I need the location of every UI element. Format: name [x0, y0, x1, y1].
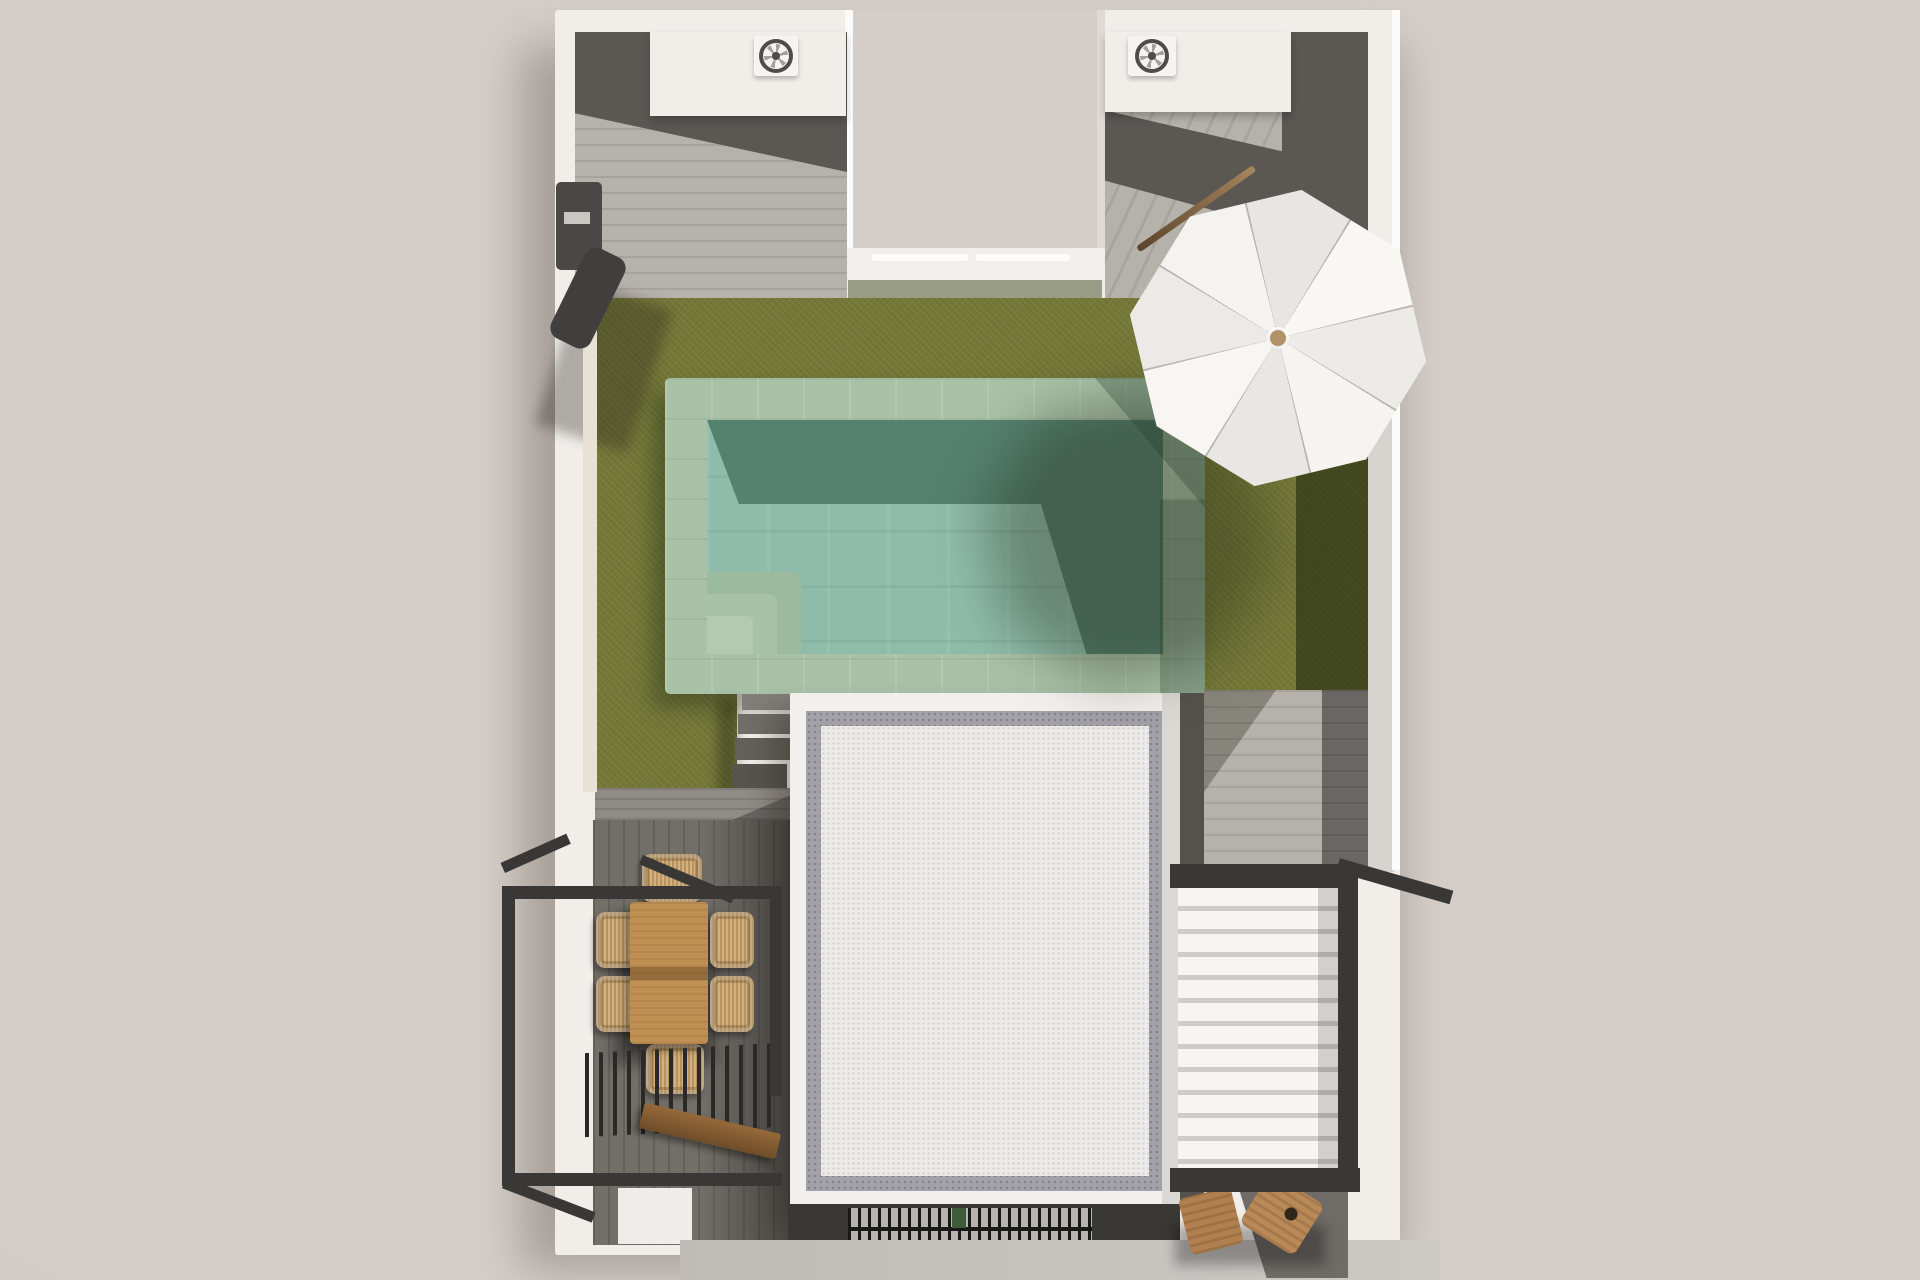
stair-tread: [735, 738, 792, 760]
parasol: [1128, 188, 1428, 488]
roof-inner-surface: [821, 726, 1149, 1176]
parasol-canopy: [1106, 166, 1449, 509]
pergola-frame-bottom: [1170, 1168, 1360, 1192]
terrace-frame-right-rail: [770, 886, 782, 1096]
entrance-hedge: [848, 280, 1102, 300]
ac-fan-icon: [754, 36, 798, 76]
terrace-frame-left-rail: [502, 886, 515, 1186]
fan-blades-icon: [759, 39, 793, 73]
stair-tread: [738, 714, 798, 734]
pergola-frame-right: [1338, 864, 1358, 1190]
terrace-frame-bottom-rail: [502, 1173, 782, 1186]
dining-table: [630, 902, 708, 1044]
outdoor-shower-slot: [564, 212, 590, 224]
gate-track: [976, 254, 1070, 261]
bottom-wall-stub: [618, 1188, 692, 1244]
stair-tread: [733, 764, 787, 788]
pool-coping-edge-shade: [1160, 500, 1205, 694]
wall-shadow-on-tiles: [1322, 690, 1368, 874]
grate-plant: [952, 1208, 966, 1228]
terrace-frame-top-rail: [502, 886, 782, 899]
lawn-left-strip: [595, 690, 737, 792]
ac-fan-icon: [1128, 36, 1176, 76]
dining-chair: [710, 912, 754, 968]
dining-chair: [710, 976, 754, 1032]
entrance-notch: [845, 10, 1105, 268]
parasol-center-knob: [1269, 329, 1287, 347]
fan-blades-icon: [1135, 39, 1169, 73]
pool-step: [707, 616, 753, 654]
scene-stage: [0, 0, 1920, 1280]
storage-unit-left: [650, 32, 846, 116]
entrance-sill: [845, 248, 1105, 280]
left-wall-inner-edge: [583, 298, 597, 792]
pergola-frame-top: [1170, 864, 1358, 888]
gate-track: [872, 254, 968, 261]
